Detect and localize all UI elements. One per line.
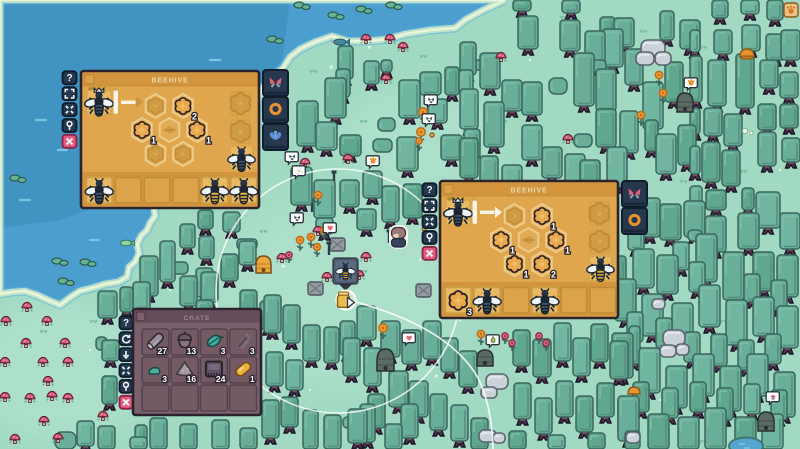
svg-text:27: 27 [157,346,167,356]
svg-text:16: 16 [187,374,197,384]
svg-text:1: 1 [250,374,255,384]
svg-text:1: 1 [551,222,556,232]
svg-text:?: ? [426,185,432,196]
svg-text:1: 1 [151,136,156,146]
svg-text:CRATE: CRATE [184,315,211,322]
svg-text:1: 1 [206,136,211,146]
svg-text:3: 3 [467,307,472,317]
svg-text:BEEHIVE: BEEHIVE [510,187,547,194]
svg-text:BEEHIVE: BEEHIVE [151,77,188,84]
svg-text:13: 13 [187,346,197,356]
svg-text:3: 3 [221,346,226,356]
svg-text:3: 3 [162,374,167,384]
svg-text:2: 2 [551,270,556,280]
svg-text:3: 3 [250,346,255,356]
svg-text:1: 1 [510,246,515,256]
svg-text:?: ? [123,318,129,329]
svg-text:1: 1 [523,270,528,280]
svg-text:2: 2 [192,112,197,122]
svg-text:1: 1 [565,246,570,256]
svg-text:24: 24 [216,374,226,384]
svg-text:?: ? [66,73,72,84]
